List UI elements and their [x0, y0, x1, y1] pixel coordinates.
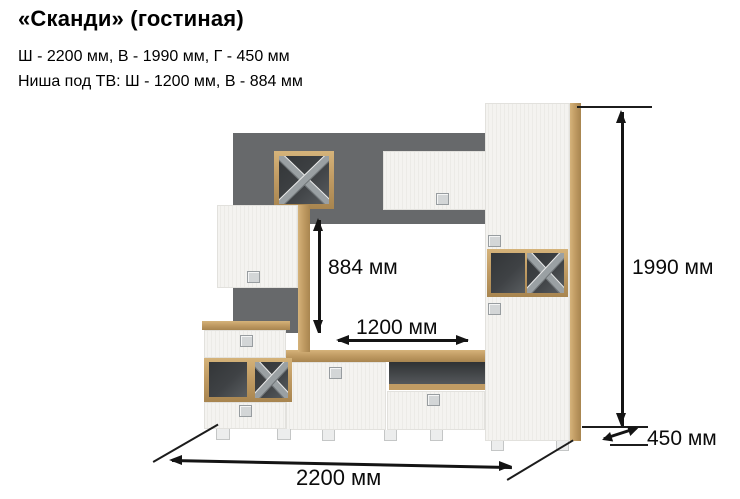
- right-cabinet-side-panel: [570, 103, 581, 441]
- dim-label-niche-height: 884 мм: [328, 256, 398, 280]
- open-cube-interior: [491, 253, 525, 293]
- extension-line: [507, 439, 574, 480]
- wine-rack-interior: [527, 253, 564, 293]
- arrowhead-left-icon: [336, 335, 349, 345]
- tv-stand-open-shelf: [389, 362, 485, 390]
- extension-line: [610, 444, 648, 446]
- left-column-side-panel: [298, 205, 310, 352]
- cabinet-foot: [216, 429, 230, 440]
- door-handle: [488, 235, 501, 247]
- arrowhead-down-icon: [313, 320, 323, 333]
- dim-label-total-width: 2200 мм: [296, 465, 381, 491]
- arrowhead-down-icon: [616, 413, 626, 426]
- door-handle: [247, 271, 260, 283]
- dim-line-total-height: [621, 112, 624, 426]
- dim-label-depth: 450 мм: [647, 427, 717, 451]
- wine-rack-cell-left: [251, 358, 292, 402]
- extension-line: [153, 424, 219, 463]
- dim-label-total-height: 1990 мм: [632, 256, 713, 280]
- drawer-handle: [240, 335, 253, 347]
- right-cabinet-open-row: [487, 249, 568, 297]
- tv-stand-top: [283, 350, 493, 362]
- arrowhead-left-icon: [169, 455, 182, 465]
- door-handle: [488, 303, 501, 315]
- wine-rack-cell-top: [274, 151, 334, 209]
- open-cube-interior: [209, 362, 247, 397]
- wine-rack-interior: [255, 362, 288, 398]
- cabinet-foot: [277, 429, 291, 440]
- arrowhead-up-icon: [616, 110, 626, 123]
- door-handle: [436, 193, 449, 205]
- wine-rack-interior: [279, 156, 329, 204]
- extension-line: [577, 106, 652, 108]
- cabinet-foot: [491, 441, 504, 451]
- drawer-handle: [239, 405, 252, 417]
- upper-wall-cabinet-door: [383, 151, 487, 210]
- arrowhead-right-icon: [456, 335, 469, 345]
- dim-arrow-depth: [603, 427, 636, 440]
- left-open-cube: [204, 358, 251, 402]
- arrowhead-up-icon: [313, 218, 323, 231]
- dim-line-niche-height: [318, 220, 321, 333]
- cabinet-foot: [384, 430, 397, 441]
- product-sheet: «Сканди» (гостиная) Ш - 2200 мм, В - 199…: [0, 0, 740, 499]
- arrowhead-right-icon: [499, 461, 512, 471]
- cabinet-foot: [430, 430, 443, 441]
- left-chest-top: [202, 321, 290, 330]
- dim-label-niche-width: 1200 мм: [356, 316, 437, 340]
- drawer-handle: [329, 367, 342, 379]
- drawer-handle: [427, 394, 440, 406]
- furniture-illustration: 884 мм 1200 мм 1990 мм 450 мм 2200 мм: [0, 0, 740, 499]
- cabinet-foot: [322, 430, 335, 441]
